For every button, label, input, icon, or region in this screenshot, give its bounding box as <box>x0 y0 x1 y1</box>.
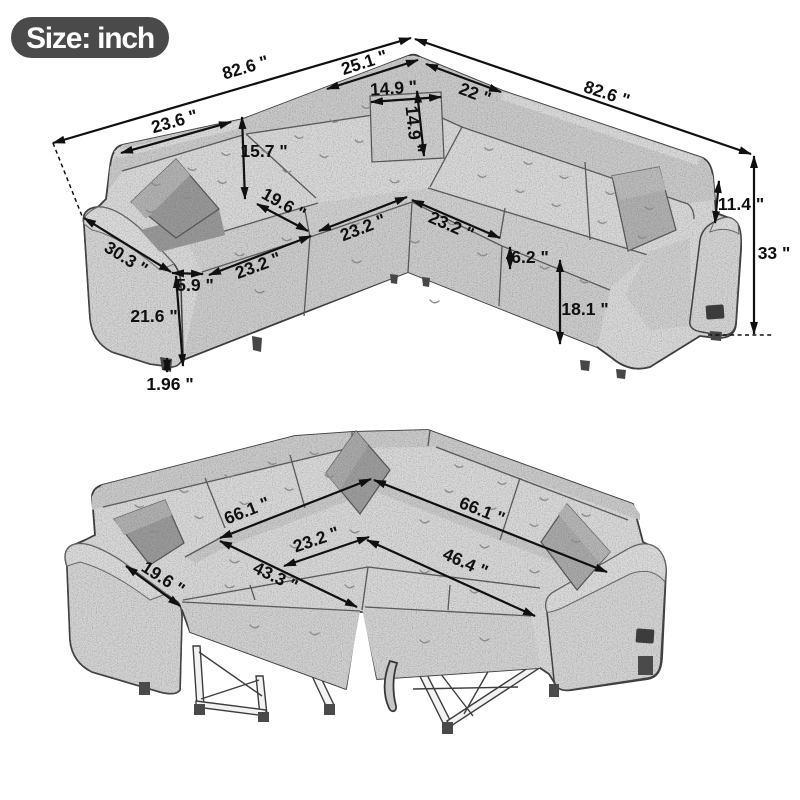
svg-text:14.9 ": 14.9 " <box>369 76 418 99</box>
svg-text:18.1 ": 18.1 " <box>561 299 608 319</box>
svg-text:1.96 ": 1.96 " <box>146 374 193 394</box>
svg-text:21.6 ": 21.6 " <box>130 306 177 326</box>
svg-text:5.9 ": 5.9 " <box>176 275 214 295</box>
svg-text:15.7 ": 15.7 " <box>240 141 287 161</box>
svg-text:33 ": 33 " <box>758 243 791 263</box>
svg-text:Size: inch: Size: inch <box>26 22 154 55</box>
svg-text:6.2 ": 6.2 " <box>511 247 549 267</box>
svg-text:11.4 ": 11.4 " <box>718 194 764 214</box>
